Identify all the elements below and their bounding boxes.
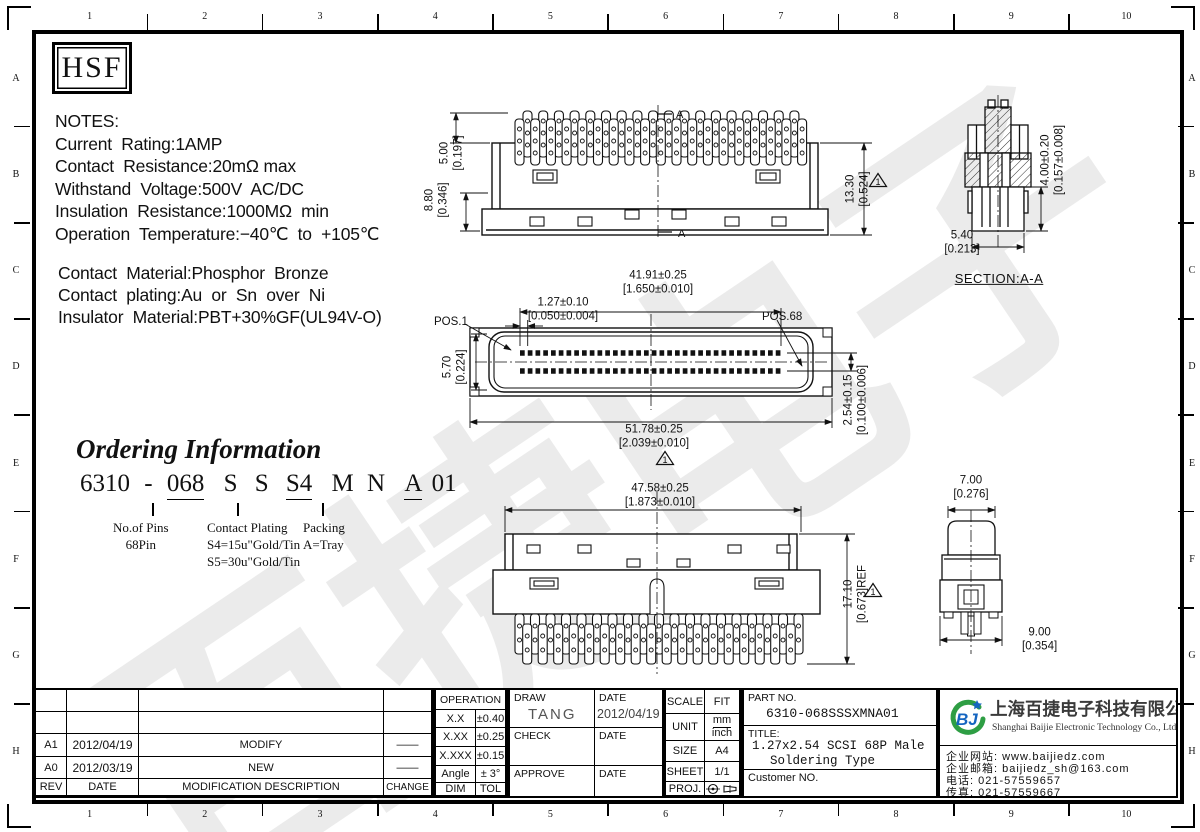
sheet-label: SHEET	[666, 762, 705, 782]
rev-header: MODIFICATION DESCRIPTION	[139, 779, 384, 796]
grid-columns-top: 1 2 3 4 5 6 7 8 9 10	[32, 4, 1184, 28]
leader-line	[237, 503, 239, 516]
note-line: Insulation Resistance:1000MΩ min	[55, 200, 379, 223]
drawing-sheet: 1 2 3 4 5 6 7 8 9 10 1 2 3 4 5 6 7 8 9 1…	[0, 0, 1200, 832]
rev-id: A0	[36, 757, 67, 779]
tol-dim: X.XXX	[436, 747, 476, 766]
grid-row-label: C	[4, 223, 28, 319]
rev-cell-empty	[36, 712, 67, 734]
dim-section-height: 4.00±0.20 [0.157±0.008]	[1039, 125, 1068, 195]
grid-col-label: 8	[838, 4, 953, 28]
title-line1: 1.27x2.54 SCSI 68P Male	[752, 739, 925, 753]
rev-cell-empty	[139, 712, 384, 734]
date-label: DATE	[599, 730, 626, 742]
note-line: Withstand Voltage:500V AC/DC	[55, 178, 379, 201]
top-view-drawing	[420, 105, 890, 240]
code-base: 6310	[80, 470, 130, 498]
meta-table: SCALE FIT UNIT mminch SIZE A4 SHEET 1/1 …	[664, 688, 742, 798]
grid-col-label: 5	[493, 4, 608, 28]
draw-value: TANG	[528, 706, 577, 723]
plating-note-label: Contact Plating	[207, 519, 300, 536]
company-name-en: Shanghai Baijie Electronic Technology Co…	[992, 722, 1176, 733]
code-pins: 068	[167, 470, 205, 500]
hsf-logo-text: HSF	[61, 51, 122, 85]
date-label: DATE	[599, 692, 626, 704]
pos1-label: POS.1	[434, 315, 468, 329]
dim-face-span: 41.91±0.25 [1.650±0.010]	[623, 269, 693, 298]
tol-dim: Angle	[436, 766, 476, 783]
section-title: SECTION:A-A	[955, 271, 1044, 287]
date-label: DATE	[599, 768, 626, 780]
dim-face-height: 5.70 [0.224]	[441, 349, 470, 384]
company-name-cn: 上海百捷电子科技有限公司	[990, 696, 1176, 721]
draw-label: DRAW	[514, 692, 546, 704]
packing-note-value: A=Tray	[303, 536, 345, 553]
grid-row-label: D	[4, 319, 28, 415]
part-no-value: 6310-068SSSXMNA01	[766, 706, 899, 721]
dim-top-pin-height: 5.00 [0.197]	[438, 135, 467, 170]
rev-change: ——	[384, 734, 432, 757]
dim-side-bottom-width: 9.00 [0.354]	[1022, 626, 1057, 655]
corner-mark	[7, 6, 31, 30]
check-date-cell: DATE	[595, 728, 662, 766]
grid-row-label: A	[4, 30, 28, 126]
revision-triangle: 1	[868, 172, 888, 188]
approve-date-cell: DATE	[595, 766, 662, 796]
note-line: Contact Material:Phosphor Bronze	[58, 262, 382, 284]
revision-triangle: 1	[863, 582, 883, 598]
company-header-cell: BJ 上海百捷电子科技有限公司 Shanghai Baijie Electron…	[940, 690, 1176, 746]
grid-col-label: 9	[954, 802, 1069, 826]
size-label: SIZE	[666, 741, 705, 762]
dim-face-width: 51.78±0.25 [2.039±0.010]	[619, 423, 689, 452]
dim-top-body-height: 8.80 [0.346]	[423, 182, 452, 217]
grid-row-label: H	[4, 704, 28, 800]
rev-header: REV	[36, 779, 67, 796]
company-fax: 传真: 021-57559667	[946, 784, 1061, 796]
dim-side-top-width: 7.00 [0.276]	[953, 474, 988, 503]
tol-dim: DIM	[436, 783, 476, 796]
unit-inch: inch	[712, 728, 732, 740]
rev-header: DATE	[67, 779, 139, 796]
approve-label: APPROVE	[514, 768, 565, 780]
title-line2: Soldering Type	[770, 754, 875, 768]
tolerance-header: OPERATION	[436, 690, 506, 710]
grid-col-label: 4	[378, 802, 493, 826]
unit-mm: mm	[713, 715, 731, 728]
grid-col-label: 7	[723, 4, 838, 28]
rev-desc: MODIFY	[139, 734, 384, 757]
code-plating: S4	[286, 470, 312, 500]
company-contact-cell: 企业网站: www.baijiedz.com 企业邮箱: baijiedz_sh…	[940, 746, 1176, 796]
check-label: CHECK	[514, 730, 551, 742]
svg-text:1: 1	[875, 177, 880, 187]
corner-mark	[7, 804, 31, 828]
rev-header: CHANGE	[384, 779, 432, 796]
grid-col-label: 8	[838, 802, 953, 826]
pos68-label: POS.68	[762, 310, 802, 324]
rev-date: 2012/03/19	[67, 757, 139, 779]
code-n: N	[367, 470, 385, 498]
tol-val: ± 3°	[476, 766, 506, 783]
title-cell: TITLE: 1.27x2.54 SCSI 68P Male Soldering…	[744, 726, 936, 770]
leader-line	[322, 503, 324, 516]
grid-col-label: 6	[608, 802, 723, 826]
draw-cell: DRAW TANG	[510, 690, 595, 728]
leader-line	[152, 503, 154, 516]
code-dash: -	[144, 470, 152, 498]
section-mark-top: A	[676, 109, 683, 121]
dim-section-width: 5.40 [0.213]	[944, 229, 979, 258]
grid-rows-left: A B C D E F G H	[4, 30, 28, 800]
draw-date-cell: DATE 2012/04/19	[595, 690, 662, 728]
proj-symbol-cell	[705, 782, 740, 796]
draw-date-value: 2012/04/19	[597, 707, 660, 721]
grid-col-label: 4	[378, 4, 493, 28]
revision-triangle: 1	[655, 450, 675, 466]
scale-value: FIT	[705, 690, 740, 714]
rev-cell-empty	[384, 690, 432, 712]
note-line: Insulator Material:PBT+30%GF(UL94V-O)	[58, 306, 382, 328]
pins-note: No.of Pins68Pin	[113, 519, 169, 553]
notes-block: NOTES:Current Rating:1AMPContact Resista…	[55, 110, 379, 245]
plating-note-opt2: S5=30u"Gold/Tin	[207, 553, 300, 570]
approve-cell: APPROVE	[510, 766, 595, 796]
code-s2: S	[255, 470, 269, 498]
pins-note-value: 68Pin	[113, 536, 169, 553]
svg-text:1: 1	[662, 455, 667, 465]
part-no-label: PART NO.	[748, 692, 796, 704]
rev-cell-empty	[67, 690, 139, 712]
dim-rear-width: 47.58±0.25 [1.873±0.010]	[625, 482, 695, 511]
company-logo-icon: BJ	[943, 698, 987, 738]
rev-cell-empty	[139, 690, 384, 712]
size-value: A4	[705, 741, 740, 762]
tol-val: ±0.25	[476, 728, 506, 747]
grid-col-label: 5	[493, 802, 608, 826]
part-no-cell: PART NO. 6310-068SSSXMNA01	[744, 690, 936, 726]
grid-col-label: 1	[32, 4, 147, 28]
code-m: M	[332, 470, 354, 498]
sheet-value: 1/1	[705, 762, 740, 782]
pins-note-label: No.of Pins	[113, 519, 169, 536]
grid-col-label: 3	[262, 802, 377, 826]
scale-label: SCALE	[666, 690, 705, 714]
grid-row-label: E	[4, 415, 28, 511]
tolerance-table: OPERATION X.X±0.40 X.XX±0.25 X.XXX±0.15 …	[434, 688, 508, 798]
grid-row-label: F	[4, 511, 28, 607]
check-cell: CHECK	[510, 728, 595, 766]
rev-cell-empty	[384, 712, 432, 734]
rev-id: A1	[36, 734, 67, 757]
code-packing: A	[404, 470, 422, 500]
grid-col-label: 2	[147, 802, 262, 826]
rev-cell-empty	[36, 690, 67, 712]
unit-value: mminch	[705, 714, 740, 741]
note-line: Contact plating:Au or Sn over Ni	[58, 284, 382, 306]
customer-no-label: Customer NO.	[748, 772, 818, 784]
grid-col-label: 10	[1069, 802, 1184, 826]
grid-col-label: 10	[1069, 4, 1184, 28]
proj-label: PROJ.	[666, 782, 705, 796]
note-line: Operation Temperature:−40℃ to +105℃	[55, 223, 379, 246]
packing-note-label: Packing	[303, 519, 345, 536]
svg-text:BJ: BJ	[956, 710, 978, 729]
material-notes-block: Contact Material:Phosphor BronzeContact …	[58, 262, 382, 329]
projection-symbol-icon	[705, 782, 739, 796]
tol-val: ±0.15	[476, 747, 506, 766]
dim-face-pitch: 1.27±0.10 [0.050±0.004]	[528, 296, 598, 325]
grid-col-label: 1	[32, 802, 147, 826]
grid-col-label: 2	[147, 4, 262, 28]
ordering-code: 6310 - 068 S S S4 M N A 01	[80, 470, 457, 500]
rev-desc: NEW	[139, 757, 384, 779]
hsf-logo: HSF	[52, 42, 132, 94]
grid-col-label: 6	[608, 4, 723, 28]
grid-columns-bottom: 1 2 3 4 5 6 7 8 9 10	[32, 802, 1184, 826]
section-mark-bottom: A	[678, 228, 685, 240]
dim-face-row-pitch: 2.54±0.15 [0.100±0.006]	[842, 365, 871, 435]
tol-dim: X.X	[436, 710, 476, 728]
tol-dim: X.XX	[436, 728, 476, 747]
ordering-title: Ordering Information	[76, 434, 321, 465]
grid-col-label: 9	[954, 4, 1069, 28]
plating-note-opt1: S4=15u"Gold/Tin	[207, 536, 300, 553]
grid-col-label: 7	[723, 802, 838, 826]
grid-row-label: B	[4, 126, 28, 222]
revision-table: A1 2012/04/19 MODIFY —— A0 2012/03/19 NE…	[34, 688, 434, 798]
code-s1: S	[224, 470, 238, 498]
tol-val: ±0.40	[476, 710, 506, 728]
notes-title: NOTES:	[55, 110, 379, 133]
rev-change: ——	[384, 757, 432, 779]
unit-label: UNIT	[666, 714, 705, 741]
svg-text:1: 1	[870, 587, 875, 597]
packing-note: PackingA=Tray	[303, 519, 345, 553]
grid-col-label: 3	[262, 4, 377, 28]
grid-row-label: G	[4, 608, 28, 704]
tol-val: TOL	[476, 783, 506, 796]
rev-cell-empty	[67, 712, 139, 734]
customer-no-cell: Customer NO.	[744, 770, 936, 796]
plating-note: Contact PlatingS4=15u"Gold/TinS5=30u"Gol…	[207, 519, 300, 570]
rev-date: 2012/04/19	[67, 734, 139, 757]
note-line: Current Rating:1AMP	[55, 133, 379, 156]
note-line: Contact Resistance:20mΩ max	[55, 155, 379, 178]
